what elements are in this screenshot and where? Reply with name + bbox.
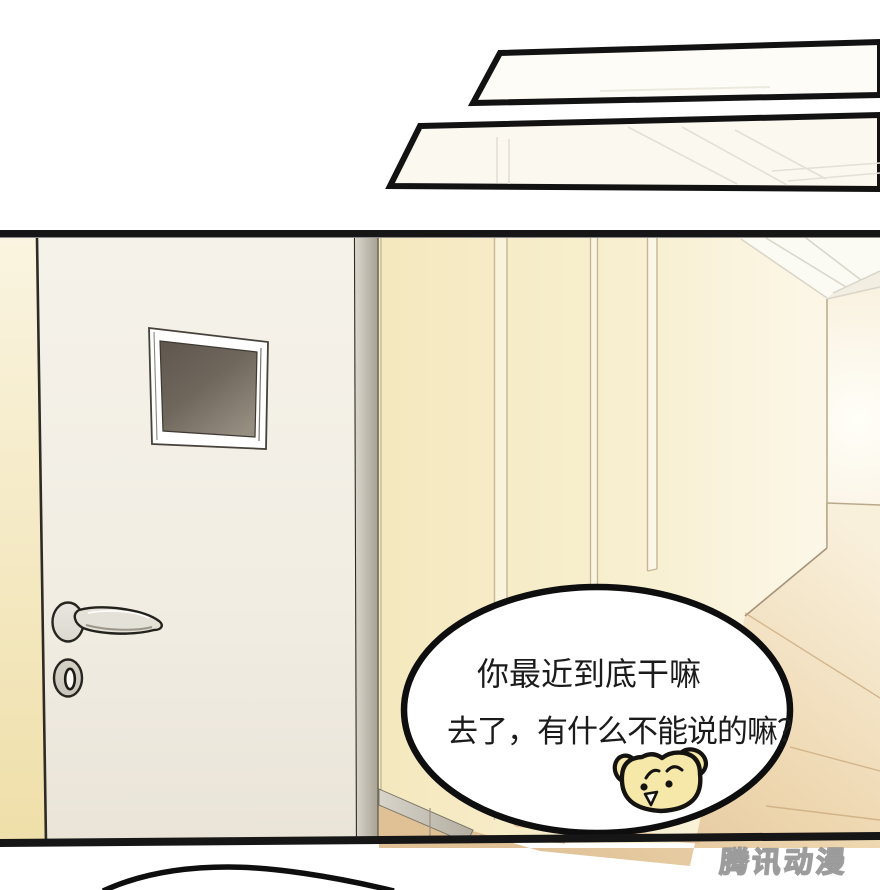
speech-bubble-line-1: 你最近到底干嘛	[459, 649, 719, 695]
dog-right-eye	[665, 780, 672, 787]
main-panel-top-border	[0, 230, 880, 238]
door-window-glass	[160, 341, 257, 437]
speech-bubble-line-2: 去了，有什么不能说的嘛？	[437, 706, 817, 751]
door	[37, 238, 357, 843]
keyhole-icon	[65, 669, 75, 689]
door-jamb	[355, 238, 378, 843]
comic-art	[0, 0, 880, 890]
tencent-comics-watermark: 腾讯动漫	[718, 839, 850, 881]
door-window	[149, 328, 268, 449]
corridor-end-wall	[827, 287, 880, 503]
top-speed-panel-1	[473, 42, 880, 103]
top-speed-panel-2	[390, 115, 880, 189]
comic-page: 你最近到底干嘛 去了，有什么不能说的嘛？ 腾讯动漫	[0, 0, 880, 890]
dog-left-eye	[640, 783, 647, 790]
dog-head	[622, 753, 700, 811]
